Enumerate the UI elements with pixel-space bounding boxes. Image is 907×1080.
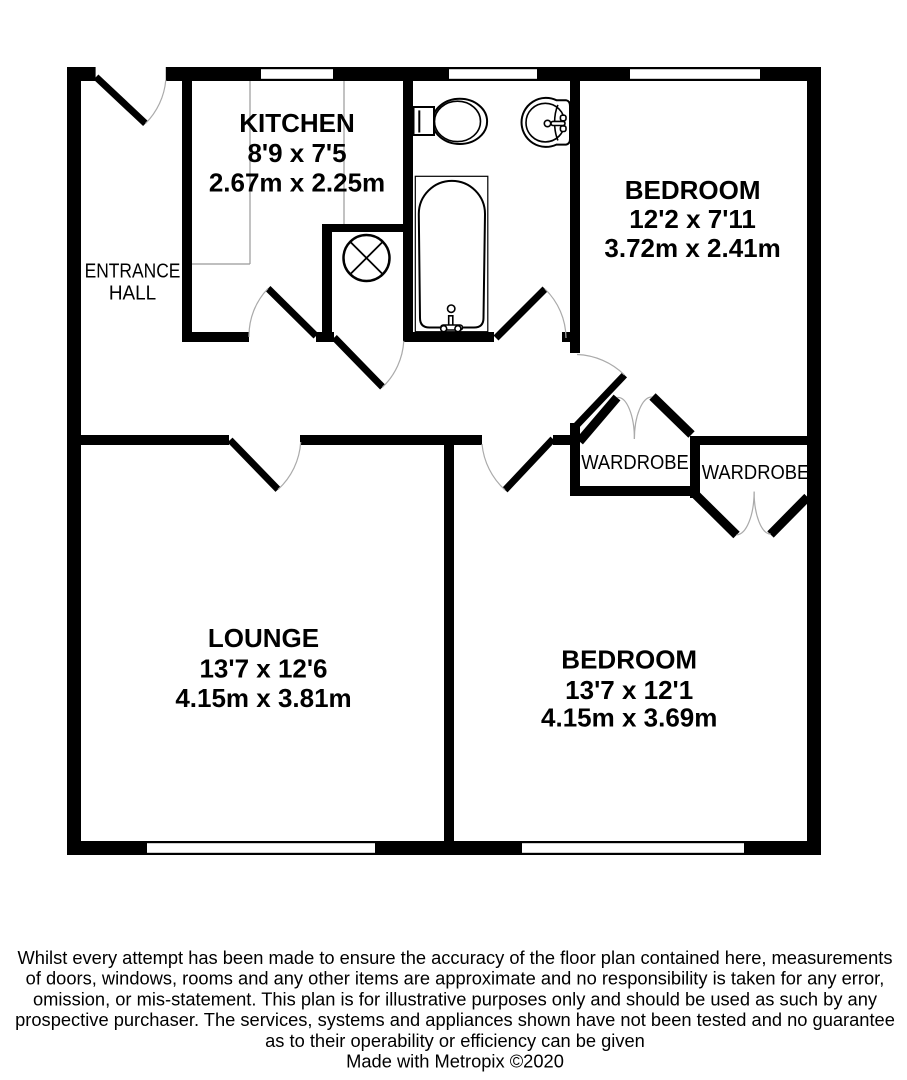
svg-text:as to their operability or eff: as to their operability or efficiency ca…: [265, 1030, 645, 1051]
svg-text:8'9 x 7'5: 8'9 x 7'5: [247, 138, 346, 168]
svg-text:3.72m x 2.41m: 3.72m x 2.41m: [604, 233, 780, 263]
svg-text:13'7 x 12'1: 13'7 x 12'1: [565, 675, 693, 705]
svg-text:4.15m x 3.81m: 4.15m x 3.81m: [175, 683, 351, 713]
svg-text:4.15m x 3.69m: 4.15m x 3.69m: [541, 703, 717, 733]
svg-text:13'7 x 12'6: 13'7 x 12'6: [199, 654, 327, 684]
svg-text:Whilst every attempt has been: Whilst every attempt has been made to en…: [18, 947, 893, 968]
svg-text:2.67m x 2.25m: 2.67m x 2.25m: [209, 168, 385, 198]
svg-text:LOUNGE: LOUNGE: [208, 623, 319, 653]
svg-text:ENTRANCE: ENTRANCE: [85, 261, 181, 283]
svg-text:KITCHEN: KITCHEN: [239, 108, 355, 138]
svg-text:BEDROOM: BEDROOM: [561, 645, 697, 675]
svg-text:WARDROBE: WARDROBE: [702, 462, 810, 484]
svg-text:of doors, windows, rooms and a: of doors, windows, rooms and any other i…: [26, 968, 885, 989]
svg-text:HALL: HALL: [109, 283, 156, 305]
svg-text:prospective purchaser. The ser: prospective purchaser. The services, sys…: [15, 1009, 895, 1030]
svg-text:BEDROOM: BEDROOM: [625, 175, 761, 205]
svg-text:omission, or mis-statement. Th: omission, or mis-statement. This plan is…: [33, 988, 878, 1009]
svg-text:WARDROBE: WARDROBE: [581, 452, 689, 474]
svg-text:12'2 x 7'11: 12'2 x 7'11: [629, 204, 756, 234]
svg-text:Made with Metropix ©2020: Made with Metropix ©2020: [346, 1051, 564, 1072]
